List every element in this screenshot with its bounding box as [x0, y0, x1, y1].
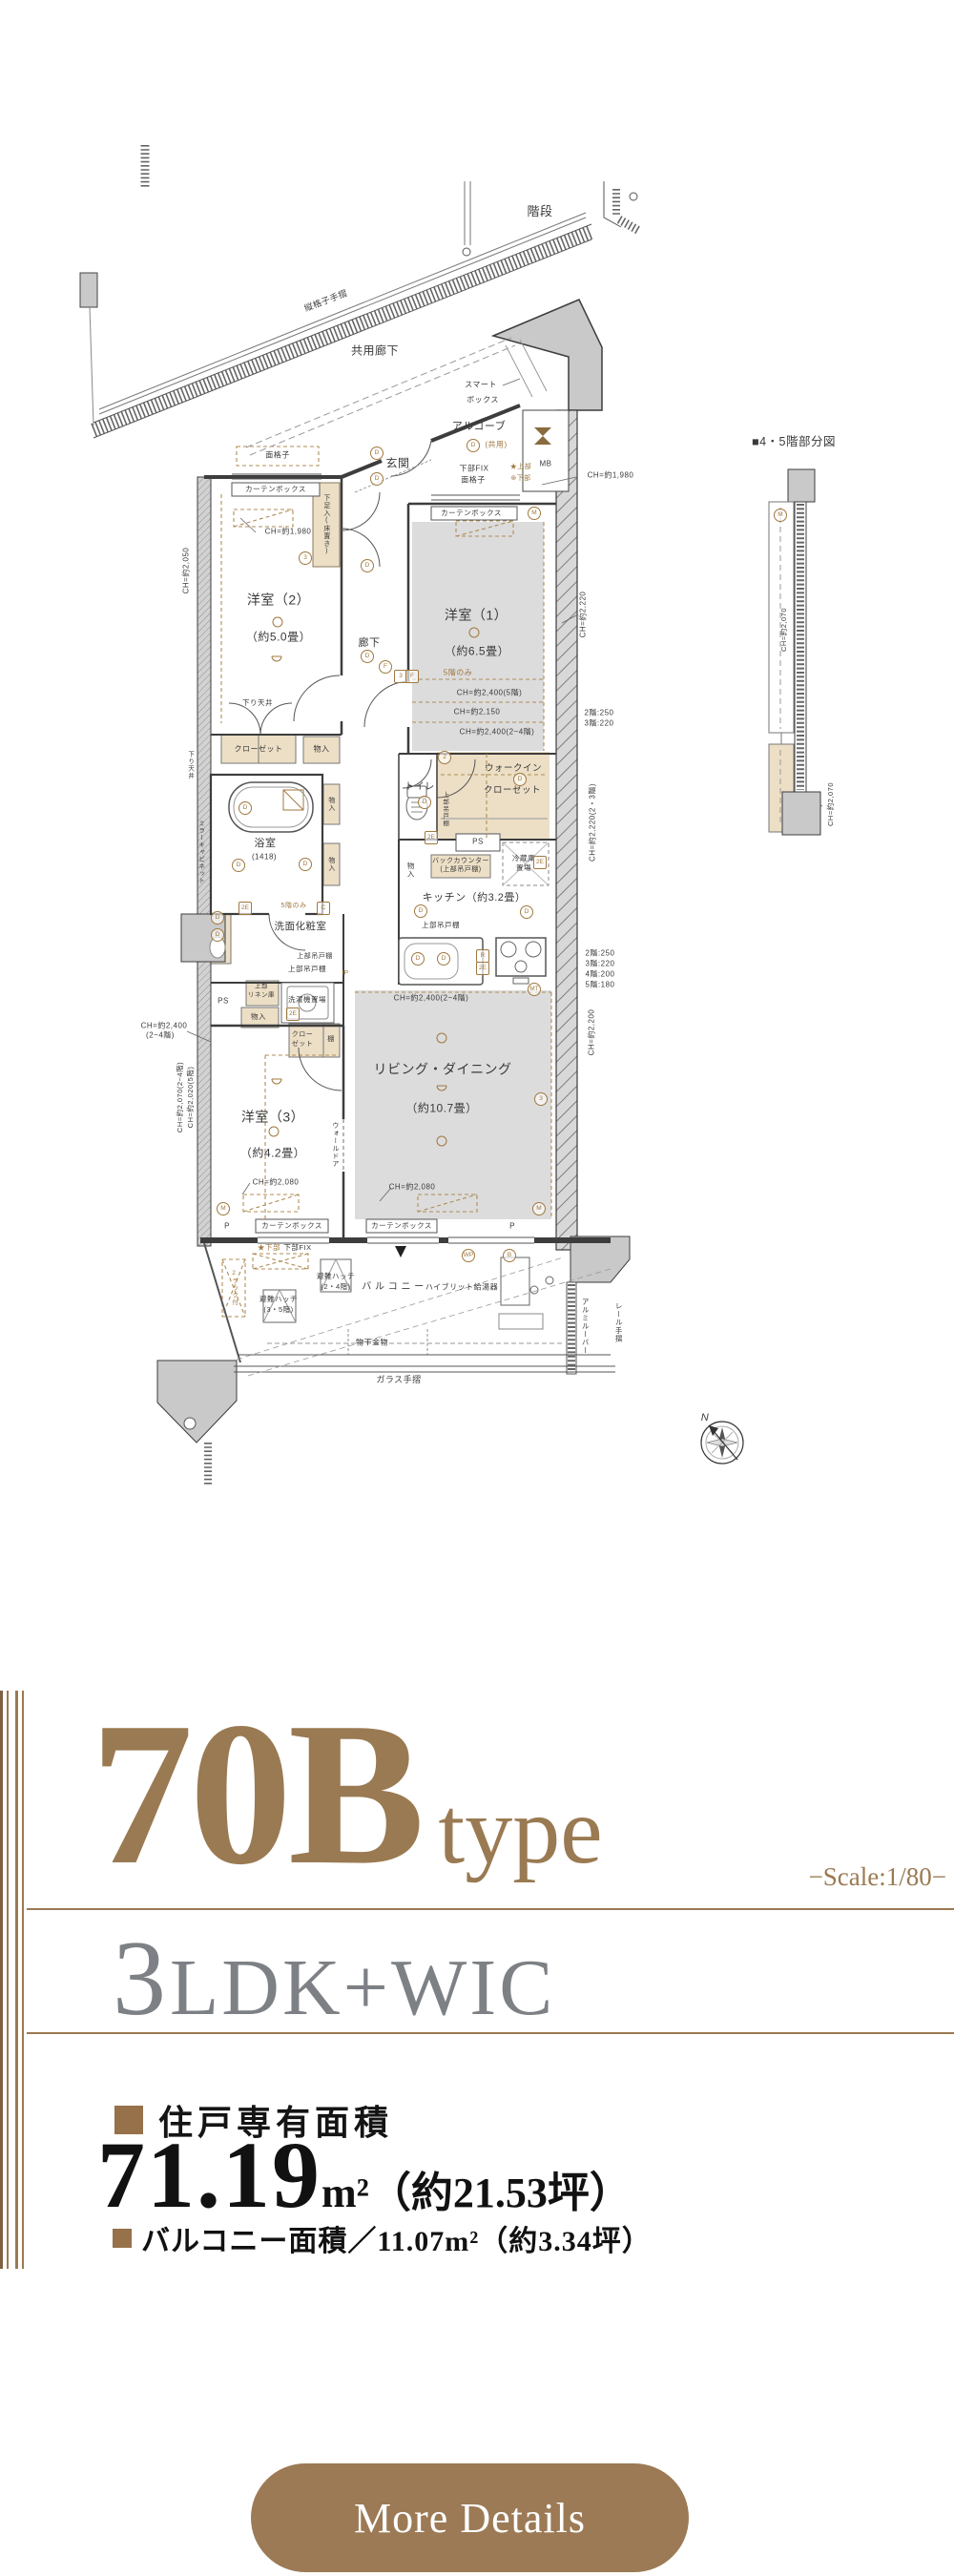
plan-symbol-badge: F: [405, 670, 419, 683]
plan-label: ⊛下部: [510, 475, 530, 483]
plan-label: 2階:250: [584, 710, 613, 718]
plan-symbol-badge: D: [238, 801, 252, 815]
plan-label: CH=約2,220(2・3階): [590, 783, 598, 862]
plan-label: ボックス: [467, 397, 499, 405]
type-number: 70B: [91, 1679, 421, 1907]
more-details-button[interactable]: More Details: [251, 2463, 689, 2572]
plan-label: 洋室（3）: [241, 1110, 304, 1124]
plan-label: P: [224, 1223, 230, 1232]
plan-symbol-badge: 3: [534, 1092, 548, 1106]
plan-label: 上部: [255, 983, 268, 989]
plan-label: カーテンボックス: [441, 509, 502, 517]
plan-label: 洗濯機置場: [288, 996, 326, 1004]
plan-label: カーテンボックス: [245, 486, 306, 493]
plan-symbol-badge: M: [774, 509, 787, 522]
plan-label: 下り天井: [242, 699, 273, 707]
plan-label: 面格子: [265, 452, 290, 461]
plan-label: トイレ: [404, 782, 435, 793]
plan-label: 冷蔵庫: [512, 855, 535, 862]
area-unit: m²: [321, 2170, 369, 2216]
plan-label: (2~4階): [146, 1032, 175, 1041]
plan-label: 5階のみ: [281, 903, 307, 910]
plan-symbol-badge: MT: [528, 983, 541, 996]
plan-label: スマート: [465, 382, 497, 390]
plan-label: アルコーブ: [452, 421, 507, 432]
plan-label: ウォークイン: [485, 764, 542, 774]
plan-symbol-badge: M: [217, 1202, 230, 1215]
layout-label: 3LDK+WIC: [113, 1925, 555, 2034]
plan-label: CH=約2,220: [580, 592, 589, 638]
decorative-line: [22, 1691, 24, 2269]
plan-label: 5階:180: [585, 982, 614, 990]
plan-symbol-badge: 2E: [533, 856, 547, 869]
plan-label: CH=約2,050: [183, 548, 192, 594]
plan-symbol-badge: D: [411, 952, 425, 966]
plan-symbol-badge: D: [370, 447, 384, 460]
plan-symbol-badge: D: [361, 559, 374, 572]
plan-label: P: [509, 1223, 515, 1232]
plan-label: CH=約2,200: [589, 1009, 597, 1056]
plan-label: CH=約2,080: [389, 1184, 436, 1193]
plan-label: 上部吊戸棚: [297, 953, 333, 961]
plan-type-title: 70Btype: [91, 1691, 603, 1896]
plan-label: 上部吊戸棚: [288, 966, 326, 973]
plan-label: CH=約1,980: [588, 472, 634, 481]
plan-label: 洗面化粧室: [275, 922, 327, 933]
plan-label: アルミルーバー: [581, 1298, 589, 1355]
decorative-line: [7, 1691, 9, 2269]
plan-label: ミラーキャビネット: [197, 820, 203, 884]
plan-label: CH=約2,070: [780, 608, 788, 652]
plan-label: ■4・5階部分図: [752, 436, 836, 449]
plan-symbol-badge: WP: [462, 1249, 475, 1262]
plan-label: 置場: [516, 864, 531, 872]
plan-label: CH=約2,400(5階): [457, 690, 523, 698]
plan-label: 物入: [251, 1013, 266, 1021]
plan-symbol-badge: 2E: [238, 902, 252, 915]
plan-symbol-badge: 2E: [476, 962, 489, 975]
plan-symbol-badge: D: [211, 928, 224, 942]
plan-label: キッチン（約3.2畳）: [423, 892, 527, 904]
plan-label: (共用): [485, 442, 507, 450]
plan-label: 下り天井: [186, 751, 193, 779]
plan-label: リネン庫: [248, 991, 275, 998]
scale-note: −Scale:1/80−: [809, 1862, 946, 1892]
plan-label: 廊下: [359, 637, 381, 649]
plan-label: （約10.7畳）: [405, 1102, 477, 1114]
plan-symbol-badge: 2E: [425, 831, 438, 844]
plan-label: 避難ハッチ: [259, 1296, 298, 1303]
plan-label: 下部FIX: [460, 466, 489, 474]
plan-label: 洋室（1）: [445, 608, 508, 622]
plan-symbol-badge: D: [520, 905, 533, 919]
plan-label: （約4.2畳）: [240, 1147, 305, 1159]
divider-line: [27, 2032, 954, 2034]
plan-label: ガラス手摺: [376, 1376, 421, 1385]
plan-label: 2ラック付: [230, 1270, 237, 1306]
layout-letters: LDK+WIC: [170, 1943, 555, 2032]
plan-label: ゼット: [292, 1041, 314, 1049]
plan-label: 縦格子手摺: [303, 289, 349, 314]
plan-symbol-badge: D: [513, 773, 527, 786]
plan-label: CH=約2,070(2~4階): [176, 1062, 184, 1132]
plan-label: N: [701, 1412, 709, 1423]
plan-label: 物入: [327, 797, 335, 812]
plan-symbol-badge: D: [467, 439, 480, 452]
area-value: 71.19m²（約21.53坪）: [97, 2128, 632, 2223]
plan-symbol-badge: D: [437, 952, 450, 966]
plan-label: CH=約2,070: [827, 782, 835, 826]
plan-label: 下足入(床置き): [322, 494, 330, 555]
plan-label: PS: [218, 998, 229, 1007]
plan-label: クロー: [292, 1031, 314, 1039]
area-tsubo: （約21.53坪）: [369, 2170, 632, 2216]
plan-label: (3・5階): [263, 1306, 293, 1314]
plan-symbol-badge: D: [361, 650, 374, 663]
plan-label: ウォールドア: [331, 1122, 339, 1168]
plan-label: 面格子: [461, 477, 486, 486]
plan-label: (2・4階): [321, 1283, 350, 1291]
plan-symbol-badge: D: [414, 904, 427, 918]
plan-symbol-badge: M: [528, 507, 541, 520]
plan-label: IP: [342, 969, 348, 976]
area-number: 71.19: [97, 2122, 321, 2228]
plan-label: 物干金物: [356, 1340, 388, 1348]
plan-label: クローゼット: [484, 786, 541, 796]
plan-label: (1418): [252, 854, 277, 862]
plan-label: 下部FIX: [283, 1244, 311, 1252]
plan-label: CH=約2,150: [454, 709, 501, 717]
plan-symbol-badge: 2E: [286, 1008, 300, 1021]
plan-label: クローゼット: [235, 746, 283, 755]
plan-label: カーテンボックス: [371, 1222, 432, 1230]
plan-label: リビング・ダイニング: [374, 1062, 512, 1076]
floorplan-page: 階段縦格子手摺共用廊下スマートボックスアルコーブ(共用)玄関MBCH=約1,98…: [0, 0, 954, 2576]
plan-label: PS: [472, 839, 484, 847]
plan-label: CH=約2,400(2~4階): [460, 729, 535, 737]
plan-label: 物入: [406, 862, 414, 879]
plan-label: (上部吊戸棚): [440, 866, 481, 874]
plan-label: 上部吊戸棚: [441, 791, 447, 827]
plan-symbol-badge: D: [211, 911, 224, 924]
plan-symbol-badge: M: [532, 1202, 546, 1215]
decorative-line: [0, 1691, 3, 2269]
plan-label: 物入: [314, 746, 330, 755]
divider-line: [27, 1908, 954, 1910]
plan-symbol-badge: C: [317, 902, 330, 915]
layout-number: 3: [113, 1920, 166, 2038]
plan-label: ハイブリット給湯器: [425, 1284, 498, 1293]
plan-symbol-badge: D: [370, 472, 384, 486]
plan-label: 上部吊戸棚: [422, 922, 460, 929]
plan-label: CH=約2,400: [141, 1023, 188, 1031]
decorative-line: [15, 1691, 18, 2269]
plan-symbol-badge: B: [503, 1249, 516, 1262]
plan-label: 3階:220: [584, 720, 613, 729]
plan-symbol-badge: R: [476, 949, 489, 963]
plan-label: （約6.5畳）: [445, 645, 509, 657]
plan-symbol-badge: 2: [438, 751, 451, 764]
balcony-area-line: バルコニー面積／11.07m²（約3.34坪）: [113, 2217, 652, 2259]
balcony-area-text: バルコニー面積／11.07m²（約3.34坪）: [141, 2217, 652, 2259]
plan-label: 3階:220: [585, 961, 614, 969]
type-suffix: type: [438, 1777, 602, 1883]
plan-label: バックカウンター: [432, 858, 489, 865]
plan-label: CH=約2,080: [253, 1179, 300, 1188]
plan-label: カーテンボックス: [261, 1222, 322, 1230]
plan-label: 5階のみ: [444, 670, 472, 678]
plan-label: CH=約1,980: [265, 529, 312, 537]
plan-label: 階段: [527, 205, 552, 218]
bullet-square-icon: [113, 2229, 132, 2248]
plan-labels: 階段縦格子手摺共用廊下スマートボックスアルコーブ(共用)玄関MBCH=約1,98…: [0, 0, 954, 1527]
plan-label: 避難ハッチ: [317, 1273, 355, 1280]
plan-label: 2階:250: [585, 950, 614, 959]
plan-symbol-badge: F: [379, 660, 392, 674]
plan-label: （約5.0畳）: [246, 631, 311, 643]
plan-label: CH=約2,020(5階): [187, 1067, 195, 1129]
plan-label: ★上部: [510, 464, 532, 471]
plan-symbol-badge: D: [418, 796, 431, 809]
plan-symbol-badge: D: [299, 858, 312, 871]
plan-label: MB: [540, 461, 552, 469]
plan-label: CH=約2,400(2~4階): [394, 995, 469, 1004]
plan-label: 玄関: [385, 457, 409, 469]
plan-label: ★下部: [258, 1244, 280, 1252]
plan-label: 洋室（2）: [247, 592, 310, 607]
plan-label: 浴室: [255, 838, 277, 849]
plan-symbol-badge: 3: [299, 551, 312, 565]
plan-symbol-badge: D: [232, 859, 245, 872]
plan-label: 棚: [327, 1036, 335, 1044]
plan-label: レール手摺: [614, 1302, 622, 1343]
plan-label: 4階:200: [585, 971, 614, 980]
plan-label: 物入: [327, 857, 335, 872]
plan-label: 共用廊下: [351, 344, 399, 357]
plan-label: バ ル コ ニ ー: [362, 1282, 425, 1293]
